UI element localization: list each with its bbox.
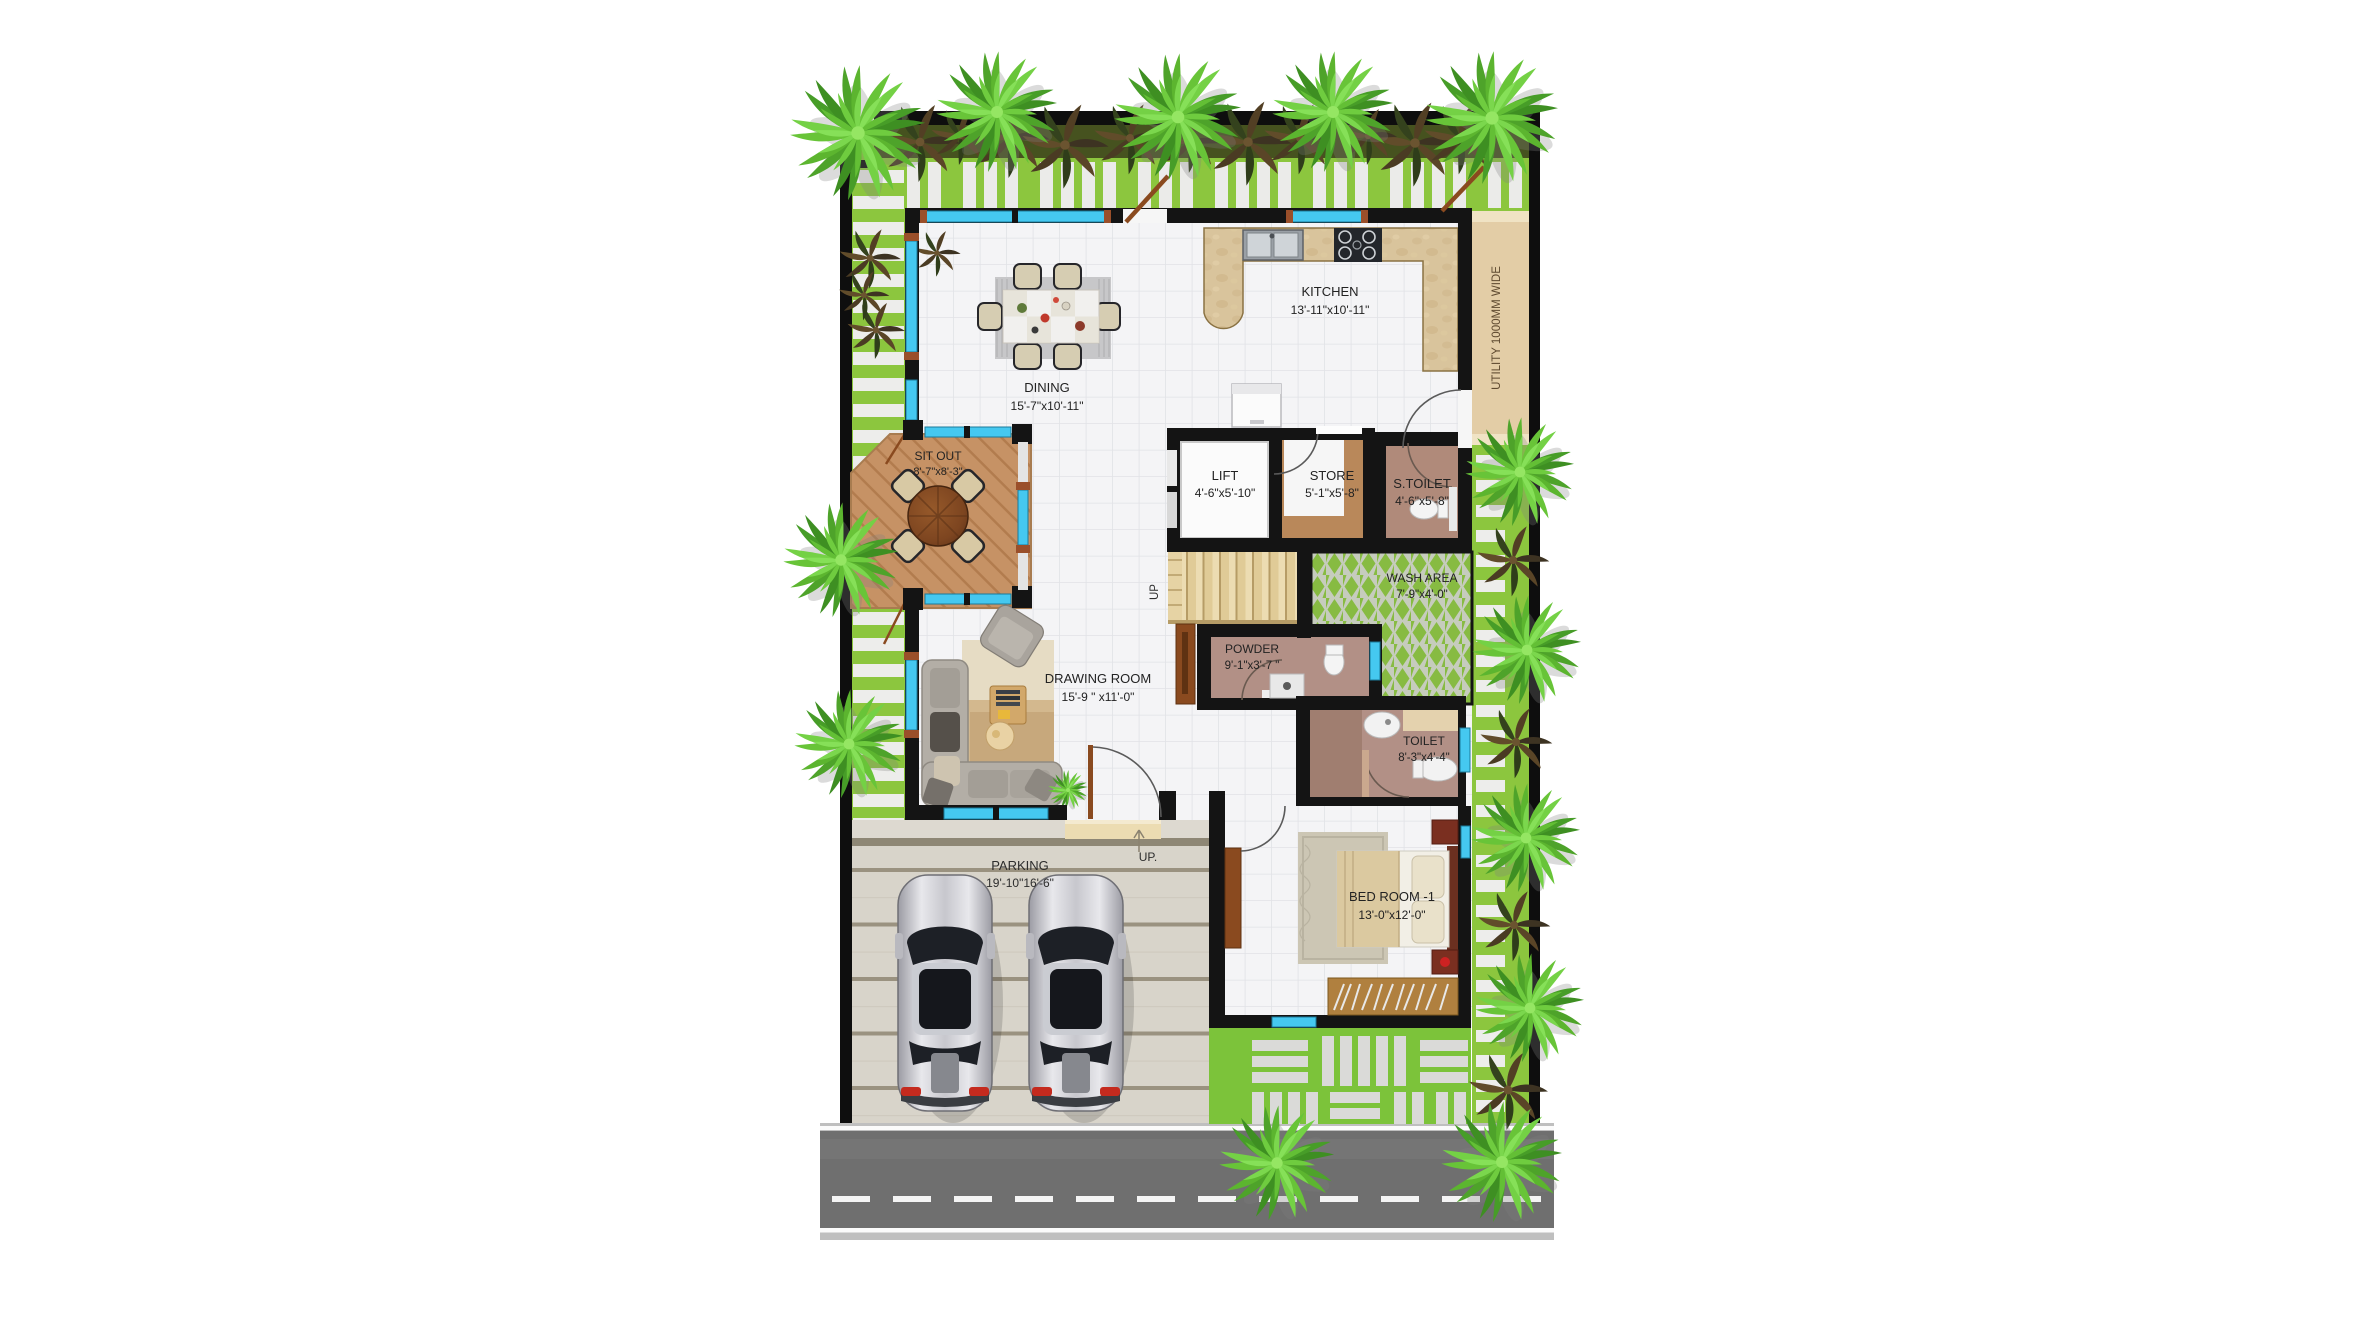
svg-text:UTILITY 1000MM WIDE: UTILITY 1000MM WIDE (1491, 266, 1503, 390)
svg-text:4'-6"x5'-8": 4'-6"x5'-8" (1395, 494, 1449, 508)
svg-text:DINING: DINING (1024, 380, 1070, 395)
svg-text:BED ROOM -1: BED ROOM -1 (1349, 889, 1435, 904)
svg-text:POWDER: POWDER (1225, 642, 1279, 656)
svg-text:13'-0"x12'-0": 13'-0"x12'-0" (1358, 908, 1425, 922)
svg-text:LIFT: LIFT (1212, 468, 1239, 483)
svg-text:7'-9"x4'-0": 7'-9"x4'-0" (1396, 589, 1448, 601)
svg-text:SIT OUT: SIT OUT (914, 449, 962, 463)
svg-text:15'-7"x10'-11": 15'-7"x10'-11" (1011, 399, 1084, 413)
svg-text:S.TOILET: S.TOILET (1393, 476, 1451, 491)
svg-text:TOILET: TOILET (1403, 734, 1445, 748)
svg-text:4'-6"x5'-10": 4'-6"x5'-10" (1195, 486, 1255, 500)
svg-text:KITCHEN: KITCHEN (1301, 284, 1358, 299)
svg-text:PARKING: PARKING (991, 858, 1049, 873)
svg-text:8'-3"x4'-4": 8'-3"x4'-4" (1398, 752, 1450, 764)
svg-text:WASH AREA: WASH AREA (1387, 571, 1458, 585)
svg-text:UP.: UP. (1139, 850, 1157, 864)
svg-text:STORE: STORE (1310, 468, 1355, 483)
svg-text:19'-10"16'-6": 19'-10"16'-6" (986, 876, 1054, 890)
svg-text:9'-1"x3'-7 ": 9'-1"x3'-7 " (1225, 660, 1280, 672)
svg-text:DRAWING ROOM: DRAWING ROOM (1045, 671, 1151, 686)
svg-text:15'-9 " x11'-0": 15'-9 " x11'-0" (1062, 690, 1135, 704)
svg-text:UP: UP (1149, 584, 1161, 600)
svg-text:8'-7"x8'-3": 8'-7"x8'-3" (913, 466, 962, 478)
svg-text:13'-11"x10'-11": 13'-11"x10'-11" (1291, 303, 1370, 317)
svg-text:5'-1"x5'-8": 5'-1"x5'-8" (1305, 486, 1359, 500)
